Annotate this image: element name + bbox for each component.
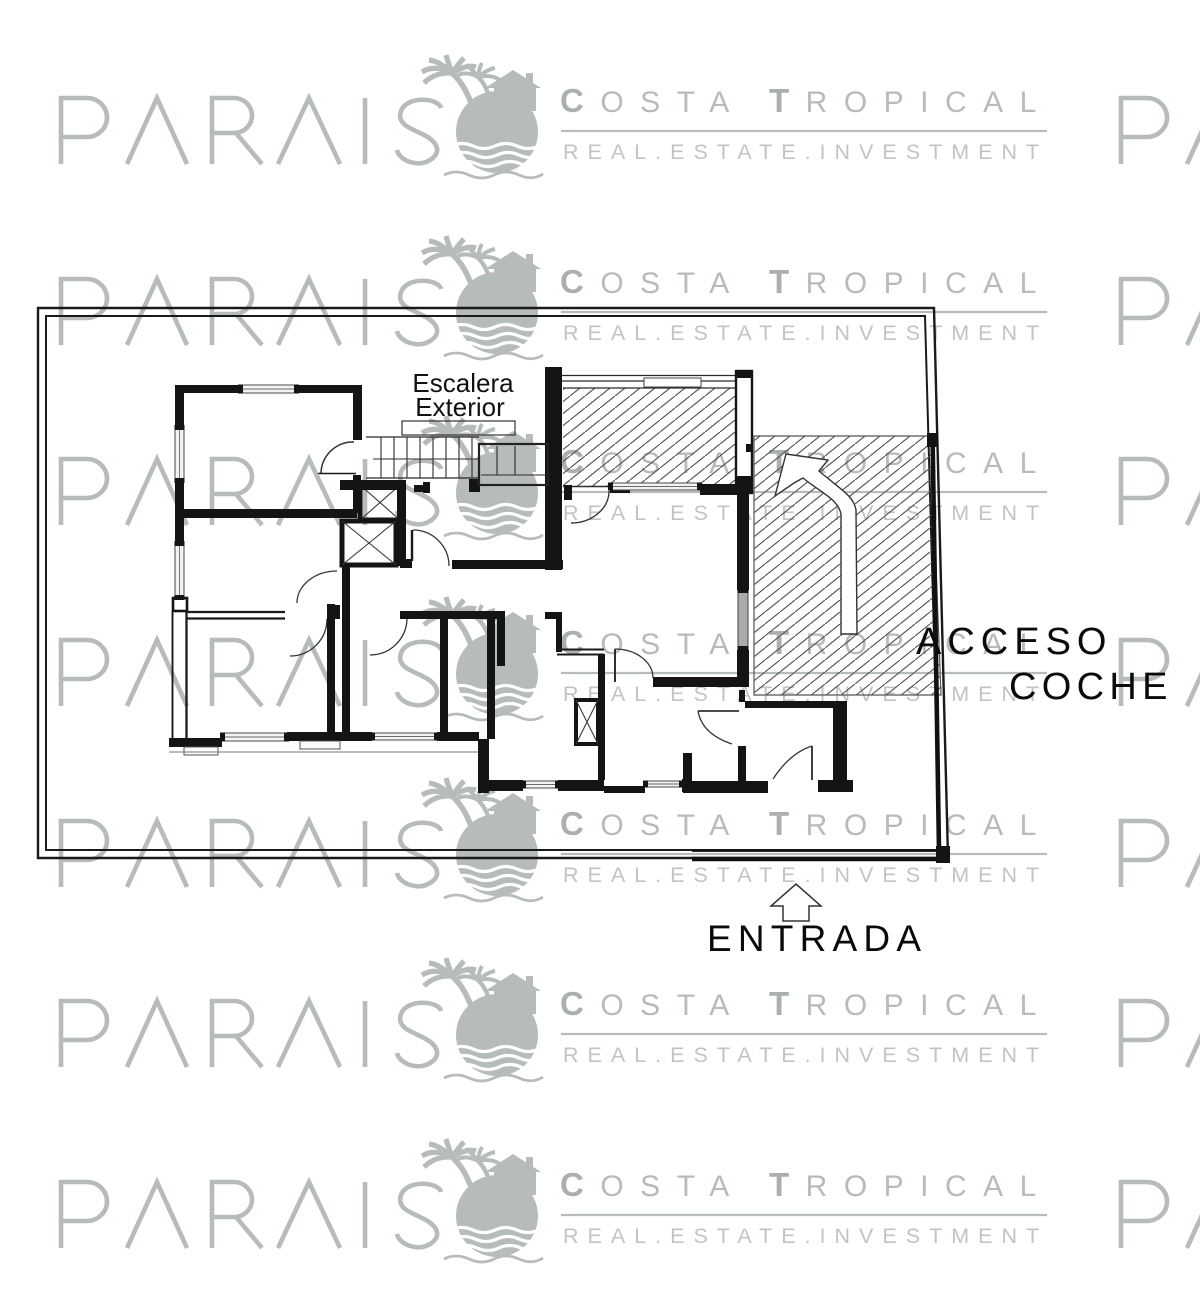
svg-text:Exterior: Exterior — [415, 392, 505, 422]
svg-text:ENTRADA: ENTRADA — [707, 918, 927, 959]
svg-text:COCHE: COCHE — [1009, 666, 1173, 708]
svg-text:ACCESO: ACCESO — [916, 621, 1112, 663]
